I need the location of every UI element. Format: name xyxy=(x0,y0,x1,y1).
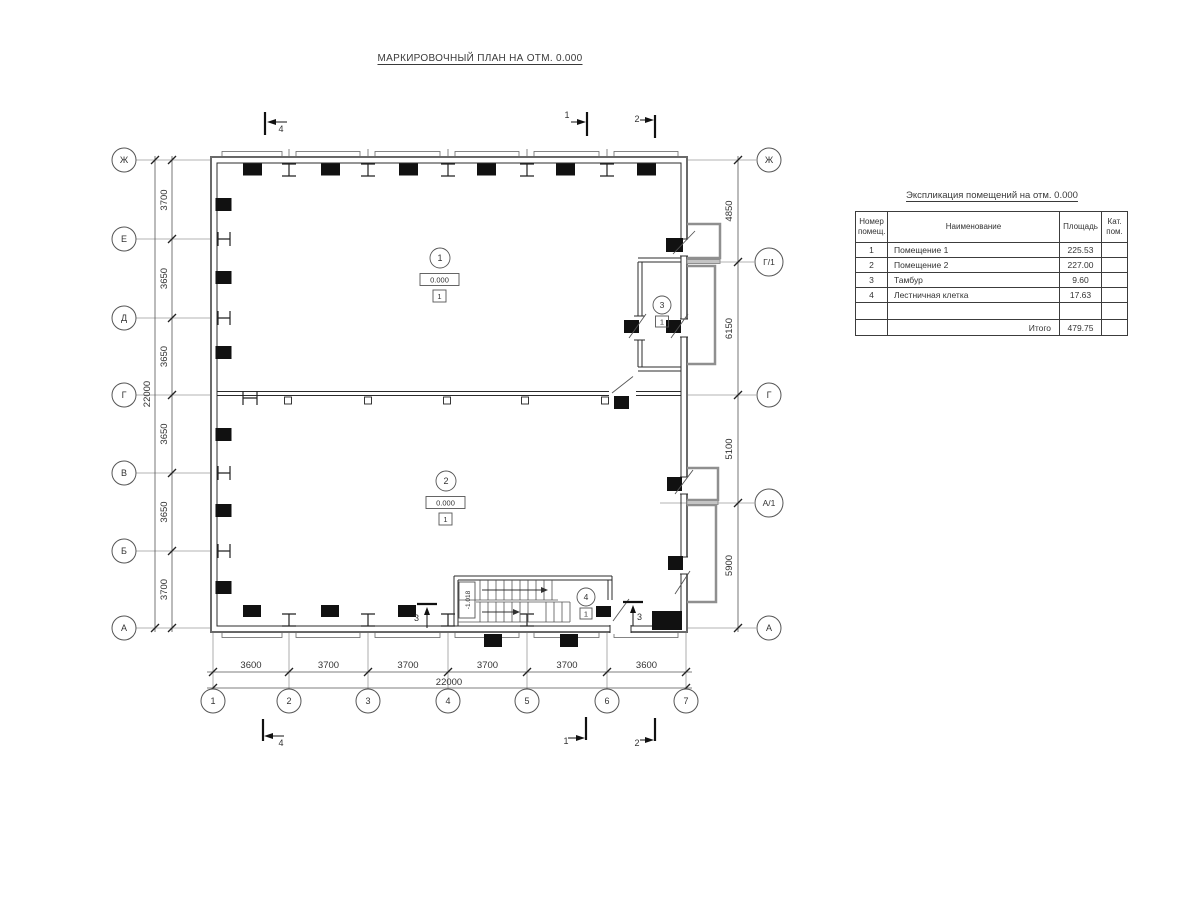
schedule-cell-number: 2 xyxy=(856,258,888,273)
schedule-cell-category xyxy=(1102,273,1128,288)
axis-left-e: Е xyxy=(121,234,127,244)
schedule-title: Экспликация помещений на отм. 0.000 xyxy=(855,190,1129,201)
schedule-cell-name: Помещение 2 xyxy=(888,258,1060,273)
axis-bottom-2: 2 xyxy=(286,696,291,706)
section-label-1-top: 1 xyxy=(564,110,569,120)
schedule-cell-number: 1 xyxy=(856,243,888,258)
schedule-title-text: Экспликация помещений на отм. 0.000 xyxy=(906,190,1078,201)
dim-right-1: 4850 xyxy=(724,200,735,221)
schedule-empty-row xyxy=(856,303,1128,320)
dim-left-2: 3650 xyxy=(159,268,170,289)
section-label-4-top: 4 xyxy=(278,124,283,134)
room4-number: 4 xyxy=(584,592,589,602)
section-label-2-top: 2 xyxy=(634,114,639,124)
schedule-cell-category xyxy=(1102,243,1128,258)
axis-right-a: А xyxy=(766,623,772,633)
schedule-cell-name: Помещение 1 xyxy=(888,243,1060,258)
section-label-4-bottom: 4 xyxy=(278,738,283,748)
axis-left-v: В xyxy=(121,468,127,478)
schedule-cell-category xyxy=(1102,258,1128,273)
porch-outlines xyxy=(687,224,720,602)
room3-category: 1 xyxy=(660,318,664,327)
schedule-cell-area xyxy=(1060,303,1102,320)
schedule-header-row: Номер помещ. Наименование Площадь Кат. п… xyxy=(856,212,1128,243)
dim-right-4: 5900 xyxy=(724,555,735,576)
schedule-header-number: Номер помещ. xyxy=(856,212,888,243)
dim-bottom-1: 3600 xyxy=(240,660,261,671)
schedule-row: 3 Тамбур 9.60 xyxy=(856,273,1128,288)
dim-bottom-6: 3600 xyxy=(636,660,657,671)
dim-left-4: 3650 xyxy=(159,423,170,444)
axis-bottom-7: 7 xyxy=(683,696,688,706)
dim-right-3: 5100 xyxy=(724,438,735,459)
schedule-total-spacer xyxy=(856,320,888,336)
dim-right-2: 6150 xyxy=(724,318,735,339)
schedule-total-row: Итого 479.75 xyxy=(856,320,1128,336)
schedule-cell-category xyxy=(1102,288,1128,303)
schedule-row: 4 Лестничная клетка 17.63 xyxy=(856,288,1128,303)
axis-left-a: А xyxy=(121,623,127,633)
stair-elevation-label: -1.018 xyxy=(465,590,472,609)
room2-number: 2 xyxy=(443,476,448,486)
room2-category: 1 xyxy=(443,515,447,524)
schedule-row: 2 Помещение 2 227.00 xyxy=(856,258,1128,273)
schedule-header-name: Наименование xyxy=(888,212,1060,243)
schedule-row: 1 Помещение 1 225.53 xyxy=(856,243,1128,258)
floor-plan-sheet: МАРКИРОВОЧНЫЙ ПЛАН НА ОТМ. 0.000 xyxy=(0,0,1200,900)
axis-bottom-1: 1 xyxy=(210,696,215,706)
axis-right-zh: Ж xyxy=(765,155,774,165)
room2-elevation: 0.000 xyxy=(436,499,455,508)
dim-bottom-2: 3700 xyxy=(318,660,339,671)
axis-left-g: Г xyxy=(122,390,127,400)
schedule-header-area: Площадь xyxy=(1060,212,1102,243)
schedule-cell-name xyxy=(888,303,1060,320)
axis-left-b: Б xyxy=(121,546,127,556)
room1-category: 1 xyxy=(437,292,441,301)
dim-bottom-3: 3700 xyxy=(397,660,418,671)
schedule-cell-number: 4 xyxy=(856,288,888,303)
building-walls xyxy=(211,149,687,638)
tambour-walls xyxy=(634,258,681,371)
schedule-total-label: Итого xyxy=(888,320,1060,336)
axis-left-zh: Ж xyxy=(120,155,129,165)
dim-left-6: 3700 xyxy=(159,579,170,600)
room1-number: 1 xyxy=(437,253,442,263)
schedule-cell-name: Лестничная клетка xyxy=(888,288,1060,303)
dim-left-1: 3700 xyxy=(159,189,170,210)
room4-category: 1 xyxy=(584,610,588,619)
axis-bottom-3: 3 xyxy=(365,696,370,706)
room3-number: 3 xyxy=(660,300,665,310)
schedule-cell-area: 17.63 xyxy=(1060,288,1102,303)
dimension-lines xyxy=(155,156,738,688)
section-markers: 4 4 1 1 2 2 3 3 xyxy=(263,110,655,748)
schedule-cell-area: 227.00 xyxy=(1060,258,1102,273)
axis-bubbles: Ж Е Д Г В Б А Ж Г/1 Г А/1 А 1 2 3 4 5 6 … xyxy=(112,148,783,713)
axis-bottom-4: 4 xyxy=(445,696,450,706)
dim-left-3: 3650 xyxy=(159,346,170,367)
schedule-cell-name: Тамбур xyxy=(888,273,1060,288)
plan-drawing: 4 4 1 1 2 2 3 3 Ж Е Д Г xyxy=(0,0,1200,900)
schedule-cell-number: 3 xyxy=(856,273,888,288)
schedule-total-category xyxy=(1102,320,1128,336)
room-tags: 1 0.000 1 2 0.000 1 3 1 4 1 -1.018 xyxy=(420,248,671,619)
schedule-cell-category xyxy=(1102,303,1128,320)
room1-elevation: 0.000 xyxy=(430,276,449,285)
axis-left-d: Д xyxy=(121,313,127,323)
section-label-1-bottom: 1 xyxy=(563,736,568,746)
schedule-cell-area: 9.60 xyxy=(1060,273,1102,288)
section-label-2-bottom: 2 xyxy=(634,738,639,748)
schedule-table: Номер помещ. Наименование Площадь Кат. п… xyxy=(855,211,1128,336)
axis-right-a1: А/1 xyxy=(763,498,776,508)
axis-right-g1: Г/1 xyxy=(763,257,775,267)
dim-left-5: 3650 xyxy=(159,501,170,522)
section-label-3-left: 3 xyxy=(414,613,419,623)
axis-bottom-6: 6 xyxy=(604,696,609,706)
axis-bottom-5: 5 xyxy=(524,696,529,706)
schedule-header-category: Кат. пом. xyxy=(1102,212,1128,243)
axis-right-g: Г xyxy=(767,390,772,400)
dim-left-total: 22000 xyxy=(142,381,153,407)
door-openings xyxy=(610,239,689,634)
room-schedule: Экспликация помещений на отм. 0.000 Номе… xyxy=(855,190,1129,336)
schedule-total-value: 479.75 xyxy=(1060,320,1102,336)
wall-marks-black xyxy=(216,164,684,648)
schedule-cell-number xyxy=(856,303,888,320)
section-label-3-right: 3 xyxy=(637,612,642,622)
dim-bottom-total: 22000 xyxy=(436,677,462,688)
dim-bottom-4: 3700 xyxy=(477,660,498,671)
dim-bottom-5: 3700 xyxy=(556,660,577,671)
schedule-cell-area: 225.53 xyxy=(1060,243,1102,258)
